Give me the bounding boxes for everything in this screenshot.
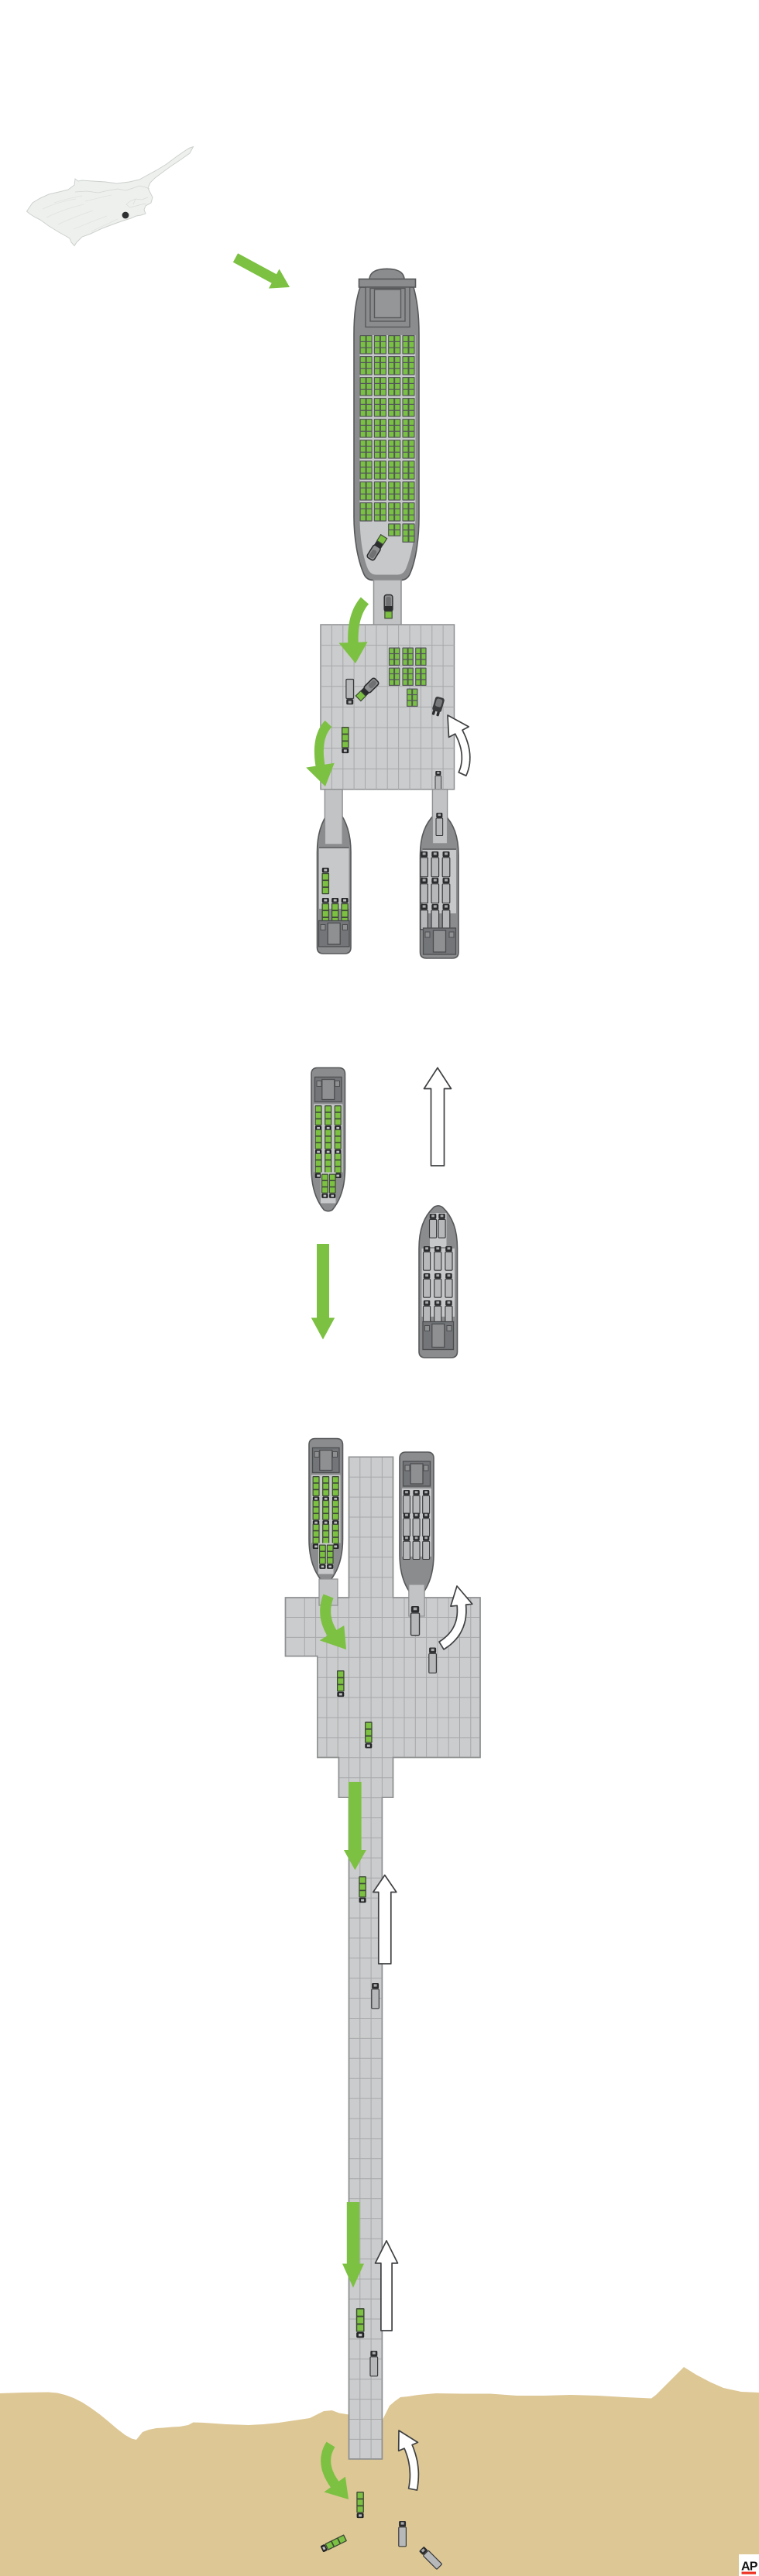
svg-text:AP: AP [741,2561,758,2574]
